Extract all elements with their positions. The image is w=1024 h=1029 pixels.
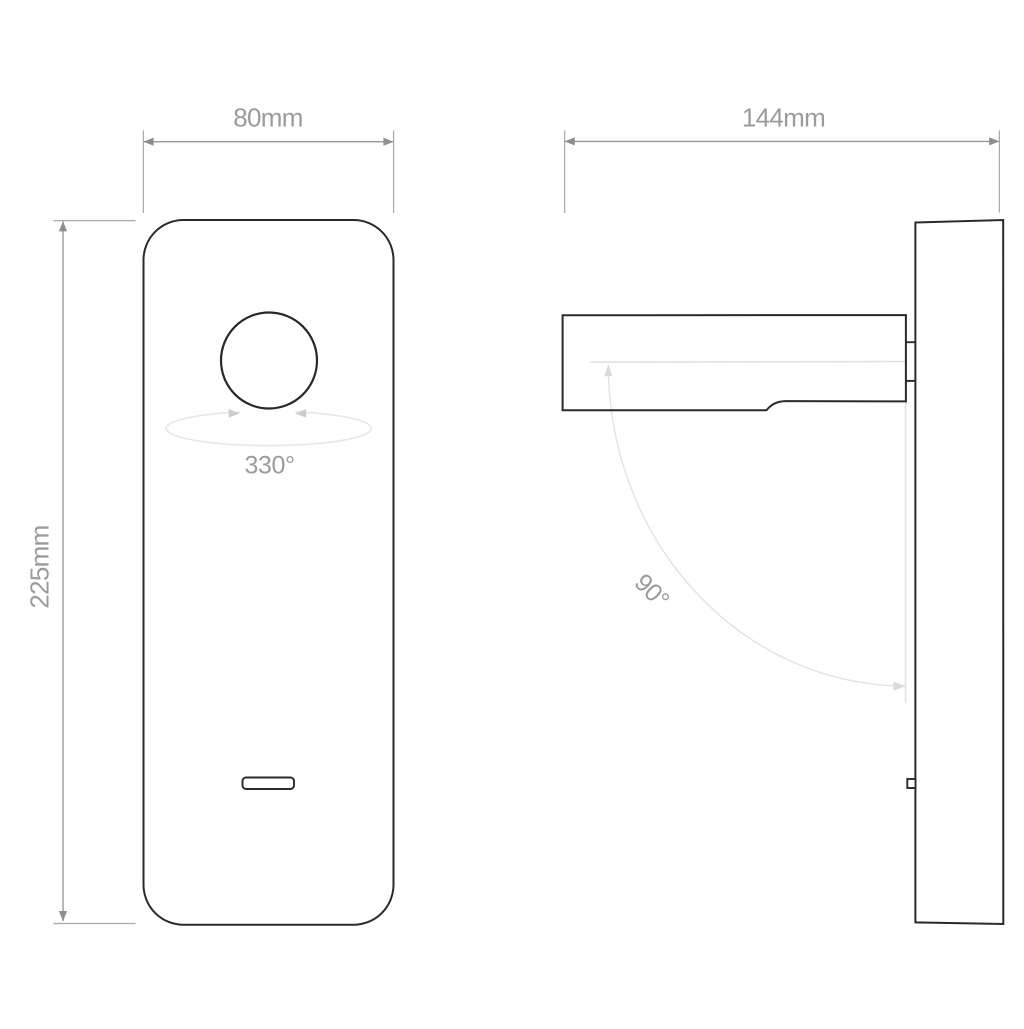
svg-text:80mm: 80mm <box>233 103 302 133</box>
svg-text:225mm: 225mm <box>25 525 55 608</box>
svg-text:144mm: 144mm <box>742 103 825 133</box>
svg-text:330°: 330° <box>244 452 294 480</box>
